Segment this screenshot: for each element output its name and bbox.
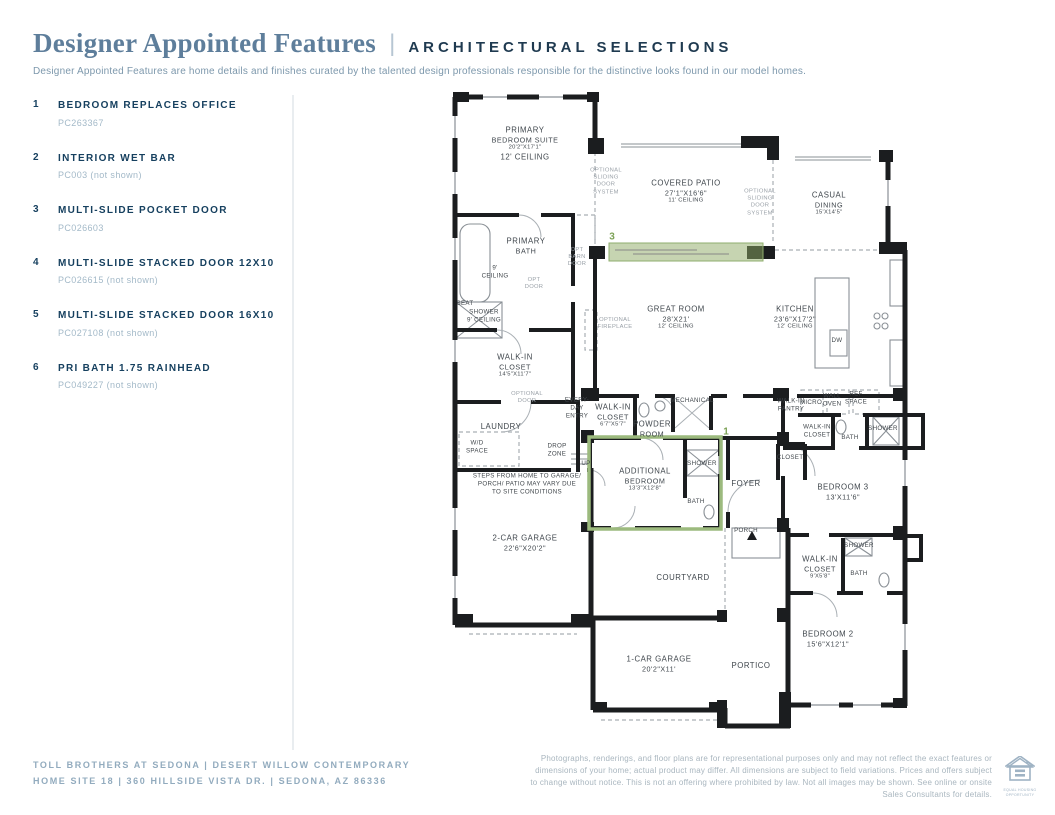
page-header: Designer Appointed Features | ARCHITECTU…: [33, 28, 806, 77]
feature-body: MULTI-SLIDE STACKED DOOR 16X10PC027108 (…: [58, 309, 274, 338]
footer-community-info: TOLL BROTHERS AT SEDONA | DESERT WILLOW …: [33, 757, 410, 789]
feature-name: PRI BATH 1.75 RAINHEAD: [58, 362, 211, 376]
equal-housing-logo: EQUAL HOUSING OPPORTUNITY: [1002, 756, 1038, 797]
feature-code: PC026615 (not shown): [58, 275, 274, 285]
feature-item-4: 4MULTI-SLIDE STACKED DOOR 12X10PC026615 …: [33, 257, 283, 286]
feature-name: MULTI-SLIDE STACKED DOOR 16X10: [58, 309, 274, 323]
feature-code: PC003 (not shown): [58, 170, 176, 180]
feature-name: BEDROOM REPLACES OFFICE: [58, 99, 237, 113]
feature-number: 4: [33, 257, 58, 286]
feature-number: 5: [33, 309, 58, 338]
equal-housing-house-icon: [1005, 756, 1035, 782]
page-description: Designer Appointed Features are home det…: [33, 66, 806, 77]
footer-disclaimer: Photographs, renderings, and floor plans…: [530, 753, 992, 801]
feature-highlights: [589, 243, 763, 529]
feature-number: 2: [33, 152, 58, 181]
title-separator: |: [389, 30, 395, 58]
page-title: Designer Appointed Features: [33, 28, 376, 59]
feature-body: MULTI-SLIDE STACKED DOOR 12X10PC026615 (…: [58, 257, 274, 286]
vertical-divider: [292, 95, 294, 750]
footer-line-2: HOME SITE 18 | 360 HILLSIDE VISTA DR. | …: [33, 773, 410, 789]
feature-item-5: 5MULTI-SLIDE STACKED DOOR 16X10PC027108 …: [33, 309, 283, 338]
wall-blocks: [453, 92, 907, 728]
feature-body: MULTI-SLIDE POCKET DOORPC026603: [58, 204, 228, 233]
feature-name: MULTI-SLIDE POCKET DOOR: [58, 204, 228, 218]
footer-line-1: TOLL BROTHERS AT SEDONA | DESERT WILLOW …: [33, 757, 410, 773]
feature-name: MULTI-SLIDE STACKED DOOR 12X10: [58, 257, 274, 271]
feature-name: INTERIOR WET BAR: [58, 152, 176, 166]
feature-code: PC027108 (not shown): [58, 328, 274, 338]
feature-code: PC049227 (not shown): [58, 380, 211, 390]
feature-body: INTERIOR WET BARPC003 (not shown): [58, 152, 176, 181]
feature-number: 6: [33, 362, 58, 391]
floorplan: PRIMARYBEDROOM SUITE20'2"X17'1"12' CEILI…: [443, 88, 925, 738]
feature-body: BEDROOM REPLACES OFFICEPC263367: [58, 99, 237, 128]
additional-bedroom-highlight: [589, 437, 721, 529]
feature-code: PC263367: [58, 118, 237, 128]
exterior-walls: [455, 97, 907, 728]
multi-slide-pocket-door-highlight: [609, 243, 763, 261]
floorplan-drawing: [443, 88, 925, 738]
feature-code: PC026603: [58, 223, 228, 233]
feature-item-6: 6PRI BATH 1.75 RAINHEADPC049227 (not sho…: [33, 362, 283, 391]
page-subtitle: ARCHITECTURAL SELECTIONS: [408, 39, 732, 56]
feature-item-1: 1BEDROOM REPLACES OFFICEPC263367: [33, 99, 283, 128]
feature-body: PRI BATH 1.75 RAINHEADPC049227 (not show…: [58, 362, 211, 391]
feature-item-3: 3MULTI-SLIDE POCKET DOORPC026603: [33, 204, 283, 233]
feature-number: 1: [33, 99, 58, 128]
feature-list: 1BEDROOM REPLACES OFFICEPC2633672INTERIO…: [33, 99, 283, 414]
equal-housing-label: EQUAL HOUSING OPPORTUNITY: [1002, 788, 1038, 797]
feature-number: 3: [33, 204, 58, 233]
feature-item-2: 2INTERIOR WET BARPC003 (not shown): [33, 152, 283, 181]
